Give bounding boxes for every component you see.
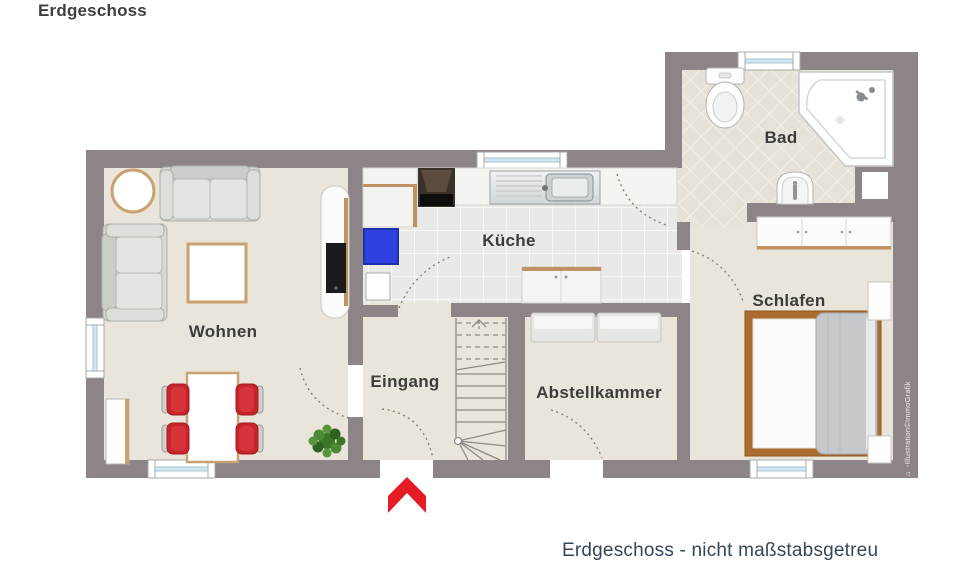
watermark: -Illustration©ImmoGrafik: [903, 381, 912, 467]
tv-unit: [321, 186, 349, 318]
room-label-schlafen: Schlafen: [752, 291, 825, 310]
kitchen-table: [366, 273, 390, 300]
side-table: [112, 170, 154, 212]
room-label-bad: Bad: [764, 128, 797, 147]
kitchen-cabinet: [522, 267, 601, 303]
toilet: [706, 68, 744, 128]
wall-niche: [862, 172, 888, 199]
wall-schlafen-stub: [677, 222, 690, 250]
floor-plan: Wohnen Küche Eingang Abstellkammer Schla…: [0, 0, 960, 586]
dining-table: [187, 373, 238, 462]
nightstand: [868, 436, 891, 463]
immografik-house-icon: ⌂: [903, 471, 912, 476]
kitchen-sink: [490, 171, 600, 204]
bathroom-sink: [777, 172, 813, 204]
dining-chair: [162, 384, 189, 415]
window-kueche: [477, 152, 567, 168]
wall-kueche-stub: [363, 305, 398, 317]
sofa: [160, 166, 260, 221]
room-label-wohnen: Wohnen: [189, 322, 258, 341]
window-bad: [738, 52, 800, 70]
tv-icon: [326, 243, 346, 293]
wall-left: [86, 150, 104, 478]
coffee-table: [188, 244, 246, 302]
room-label-abstellkammer: Abstellkammer: [536, 383, 662, 402]
bed: [745, 311, 881, 456]
window-schlafen: [750, 460, 813, 478]
wall-bottom-2: [433, 460, 550, 478]
room-label-eingang: Eingang: [370, 372, 439, 391]
wardrobe: [757, 217, 891, 250]
wall-abstell-left: [508, 317, 525, 460]
wall-top-main: [86, 150, 682, 168]
stove: [418, 168, 455, 207]
nightstand: [868, 282, 891, 320]
dining-chair: [236, 423, 263, 454]
wall-wohnen-upper: [348, 168, 363, 365]
entrance-arrow-icon: [388, 477, 426, 513]
floor-bad-doorway: [677, 168, 747, 227]
room-label-kueche: Küche: [482, 231, 535, 250]
faucet-icon: [542, 185, 548, 191]
dining-chair: [162, 423, 189, 454]
window-wohnen-left: [86, 318, 104, 378]
floor-plan-page: Erdgeschoss: [0, 0, 960, 586]
corner-sofa: [102, 224, 167, 321]
sideboard: [106, 399, 129, 464]
wall-wohnen-lower: [348, 417, 363, 460]
dining-chair: [236, 384, 263, 415]
wall-schlafen-left: [677, 303, 690, 460]
blue-appliance: [364, 229, 398, 264]
caption: Erdgeschoss - nicht maßstabsgetreu: [562, 540, 878, 562]
